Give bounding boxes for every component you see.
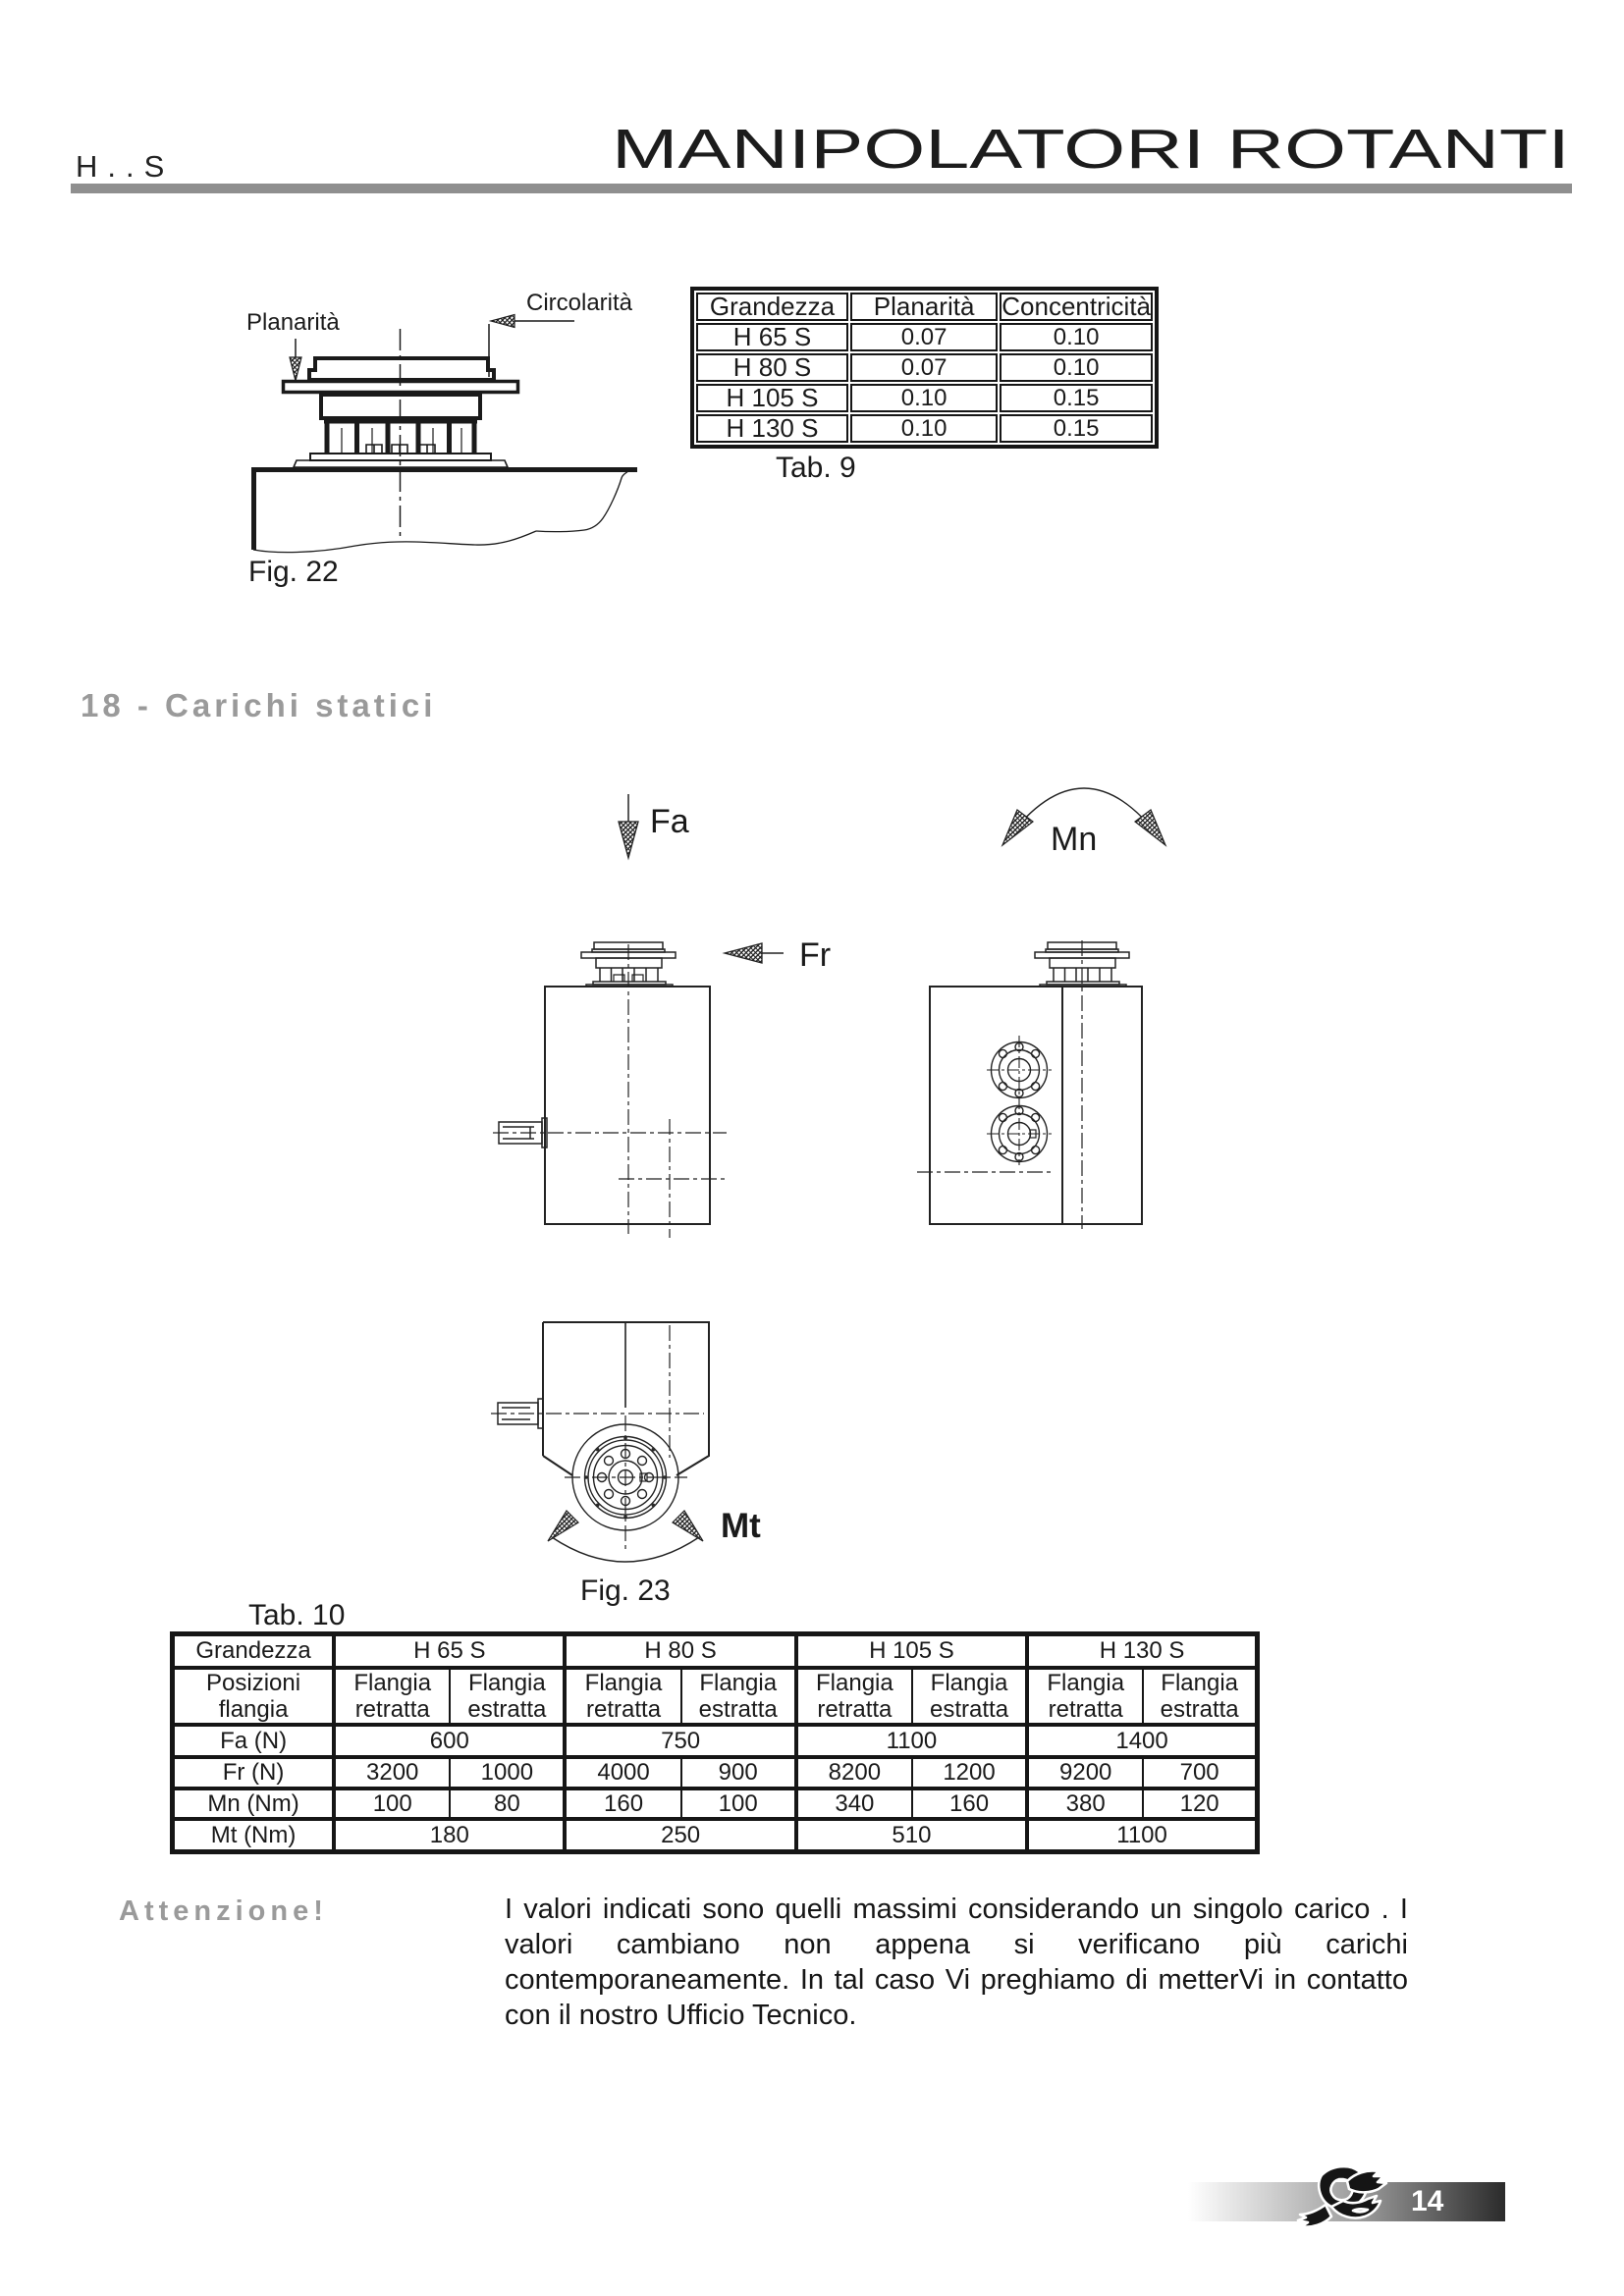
svg-text:Mn: Mn — [1051, 821, 1097, 858]
svg-text:Circolarità: Circolarità — [526, 290, 633, 316]
svg-text:Fa: Fa — [650, 803, 689, 840]
svg-text:Fig. 23: Fig. 23 — [580, 1575, 671, 1607]
svg-text:Mt: Mt — [721, 1507, 761, 1545]
svg-text:Fig. 22: Fig. 22 — [248, 556, 339, 588]
svg-text:Planarità: Planarità — [246, 309, 340, 336]
svg-text:Fr: Fr — [799, 936, 831, 974]
svg-text:14: 14 — [1411, 2185, 1444, 2217]
svg-text:MANIPOLATORI ROTANTI: MANIPOLATORI ROTANTI — [612, 118, 1570, 173]
